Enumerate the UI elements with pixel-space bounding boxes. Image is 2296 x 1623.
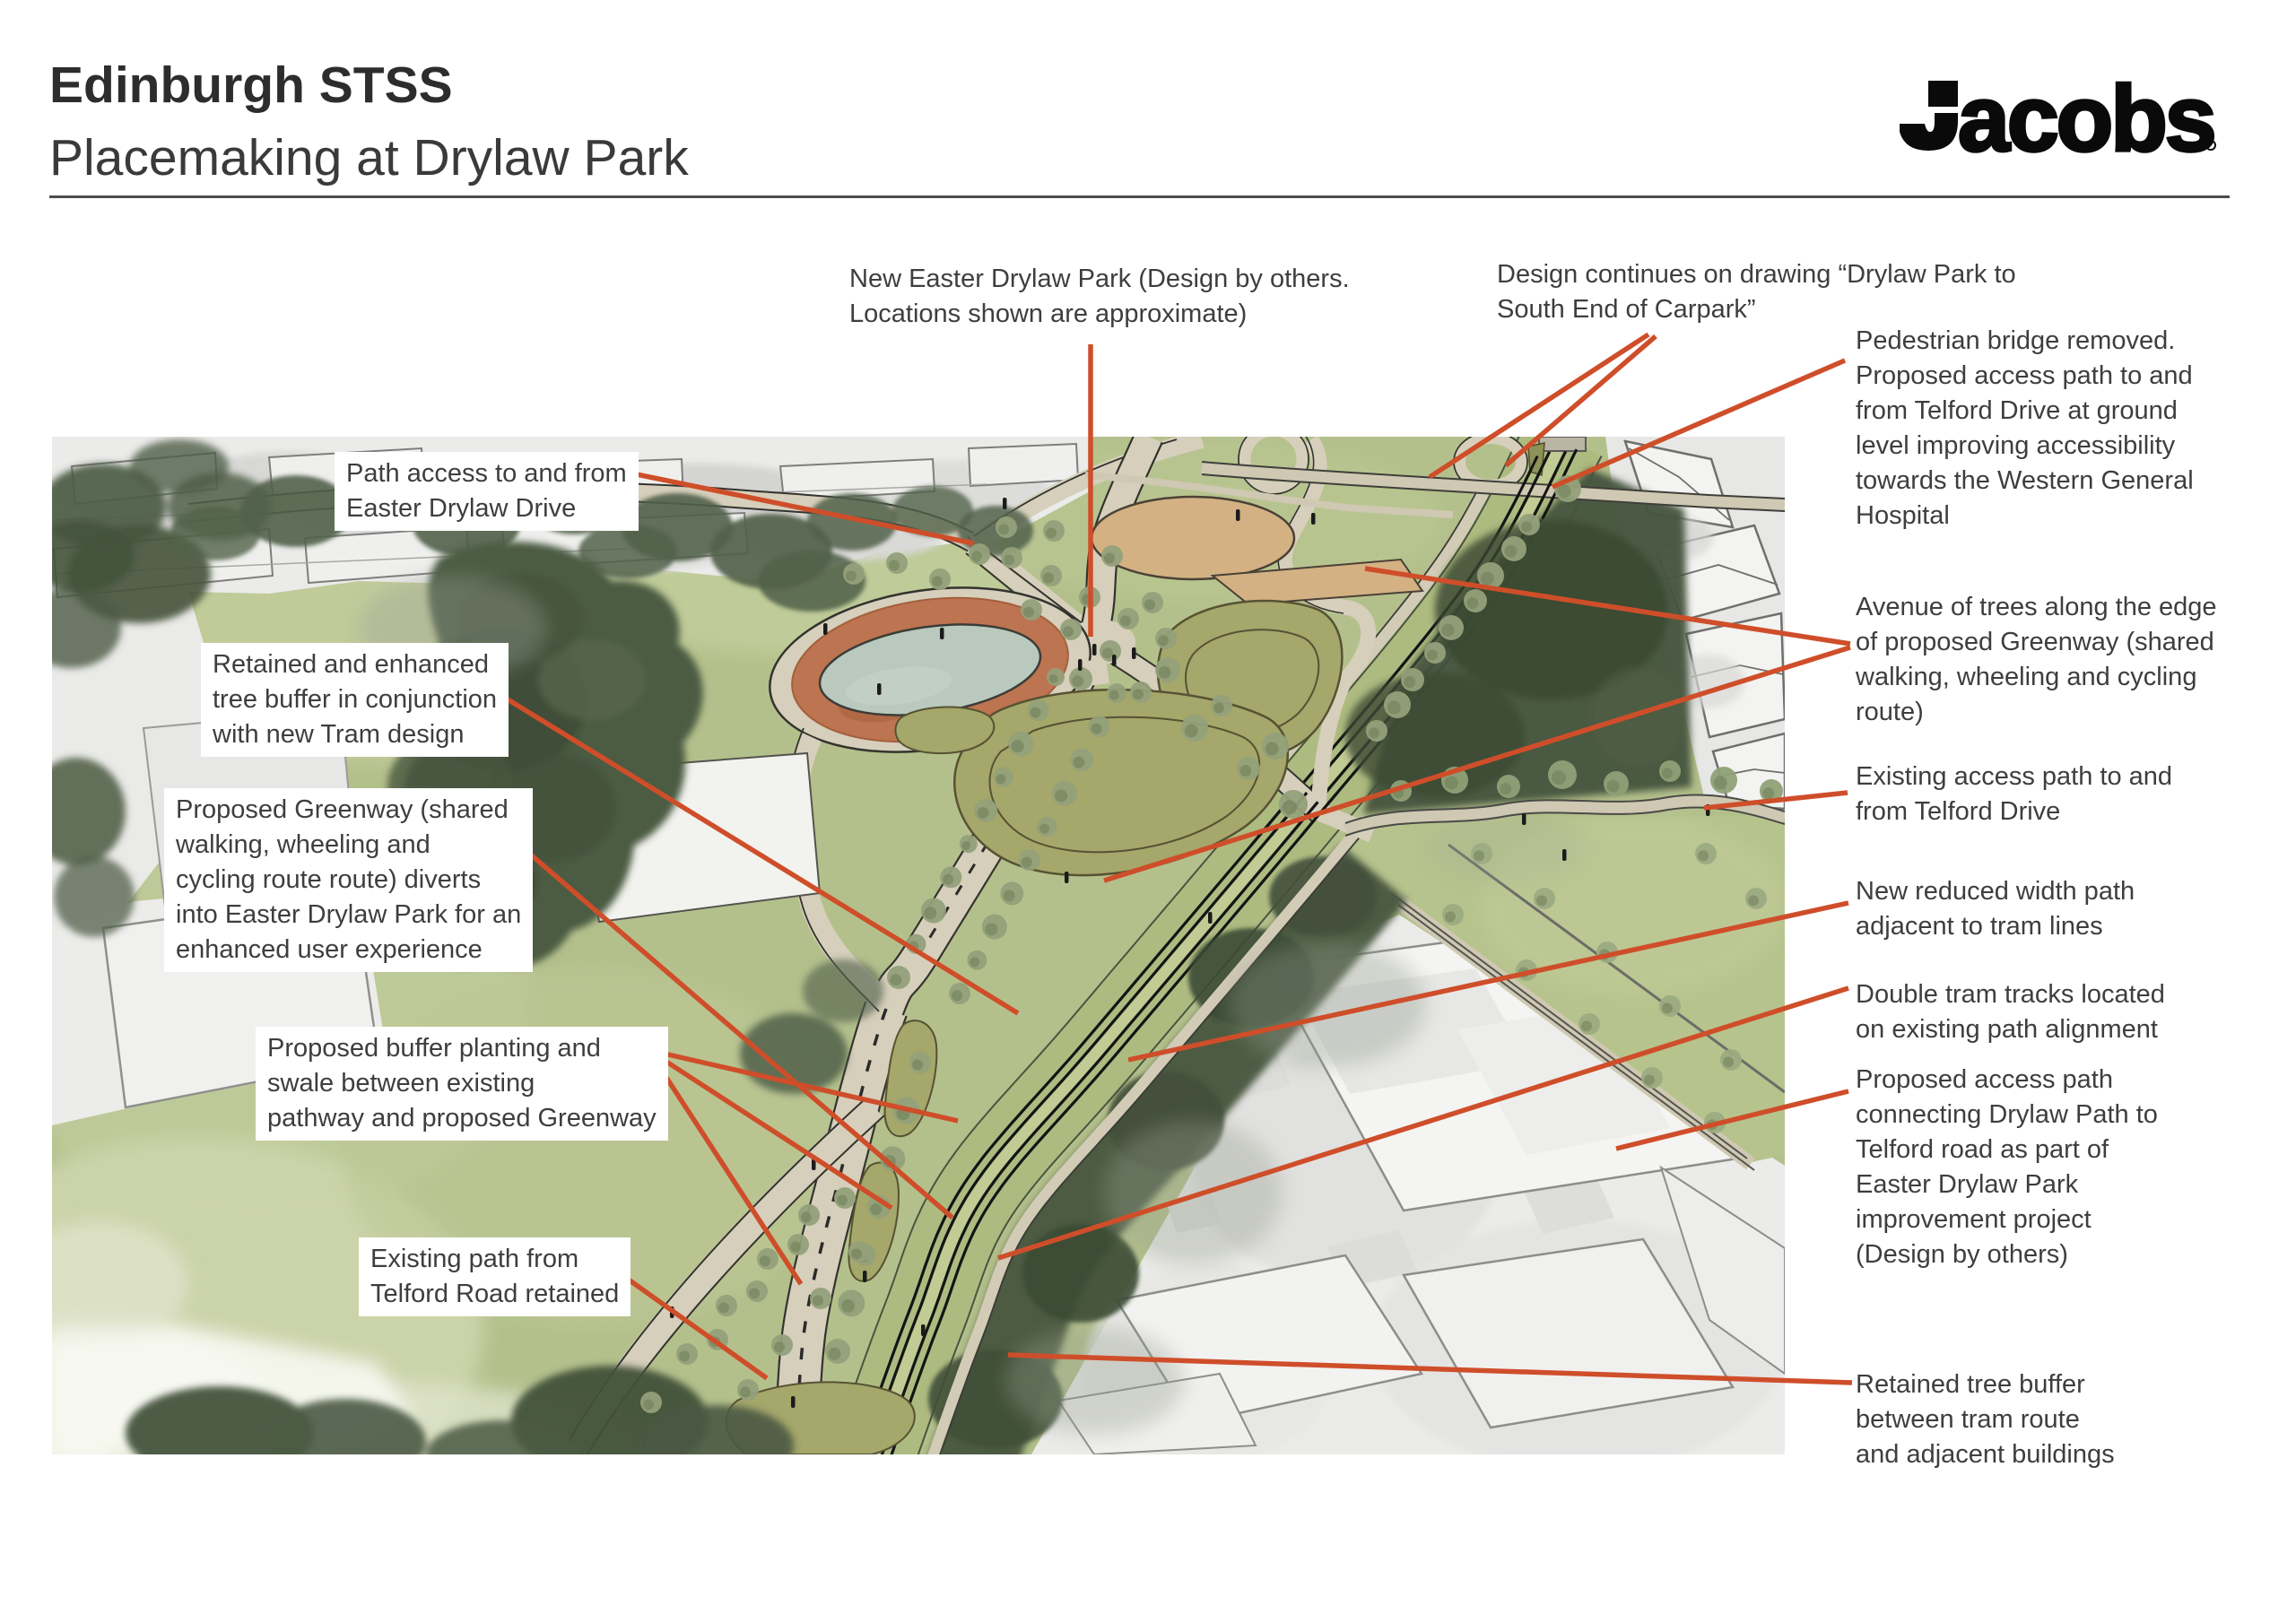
svg-text:acobs: acobs — [1958, 67, 2214, 171]
